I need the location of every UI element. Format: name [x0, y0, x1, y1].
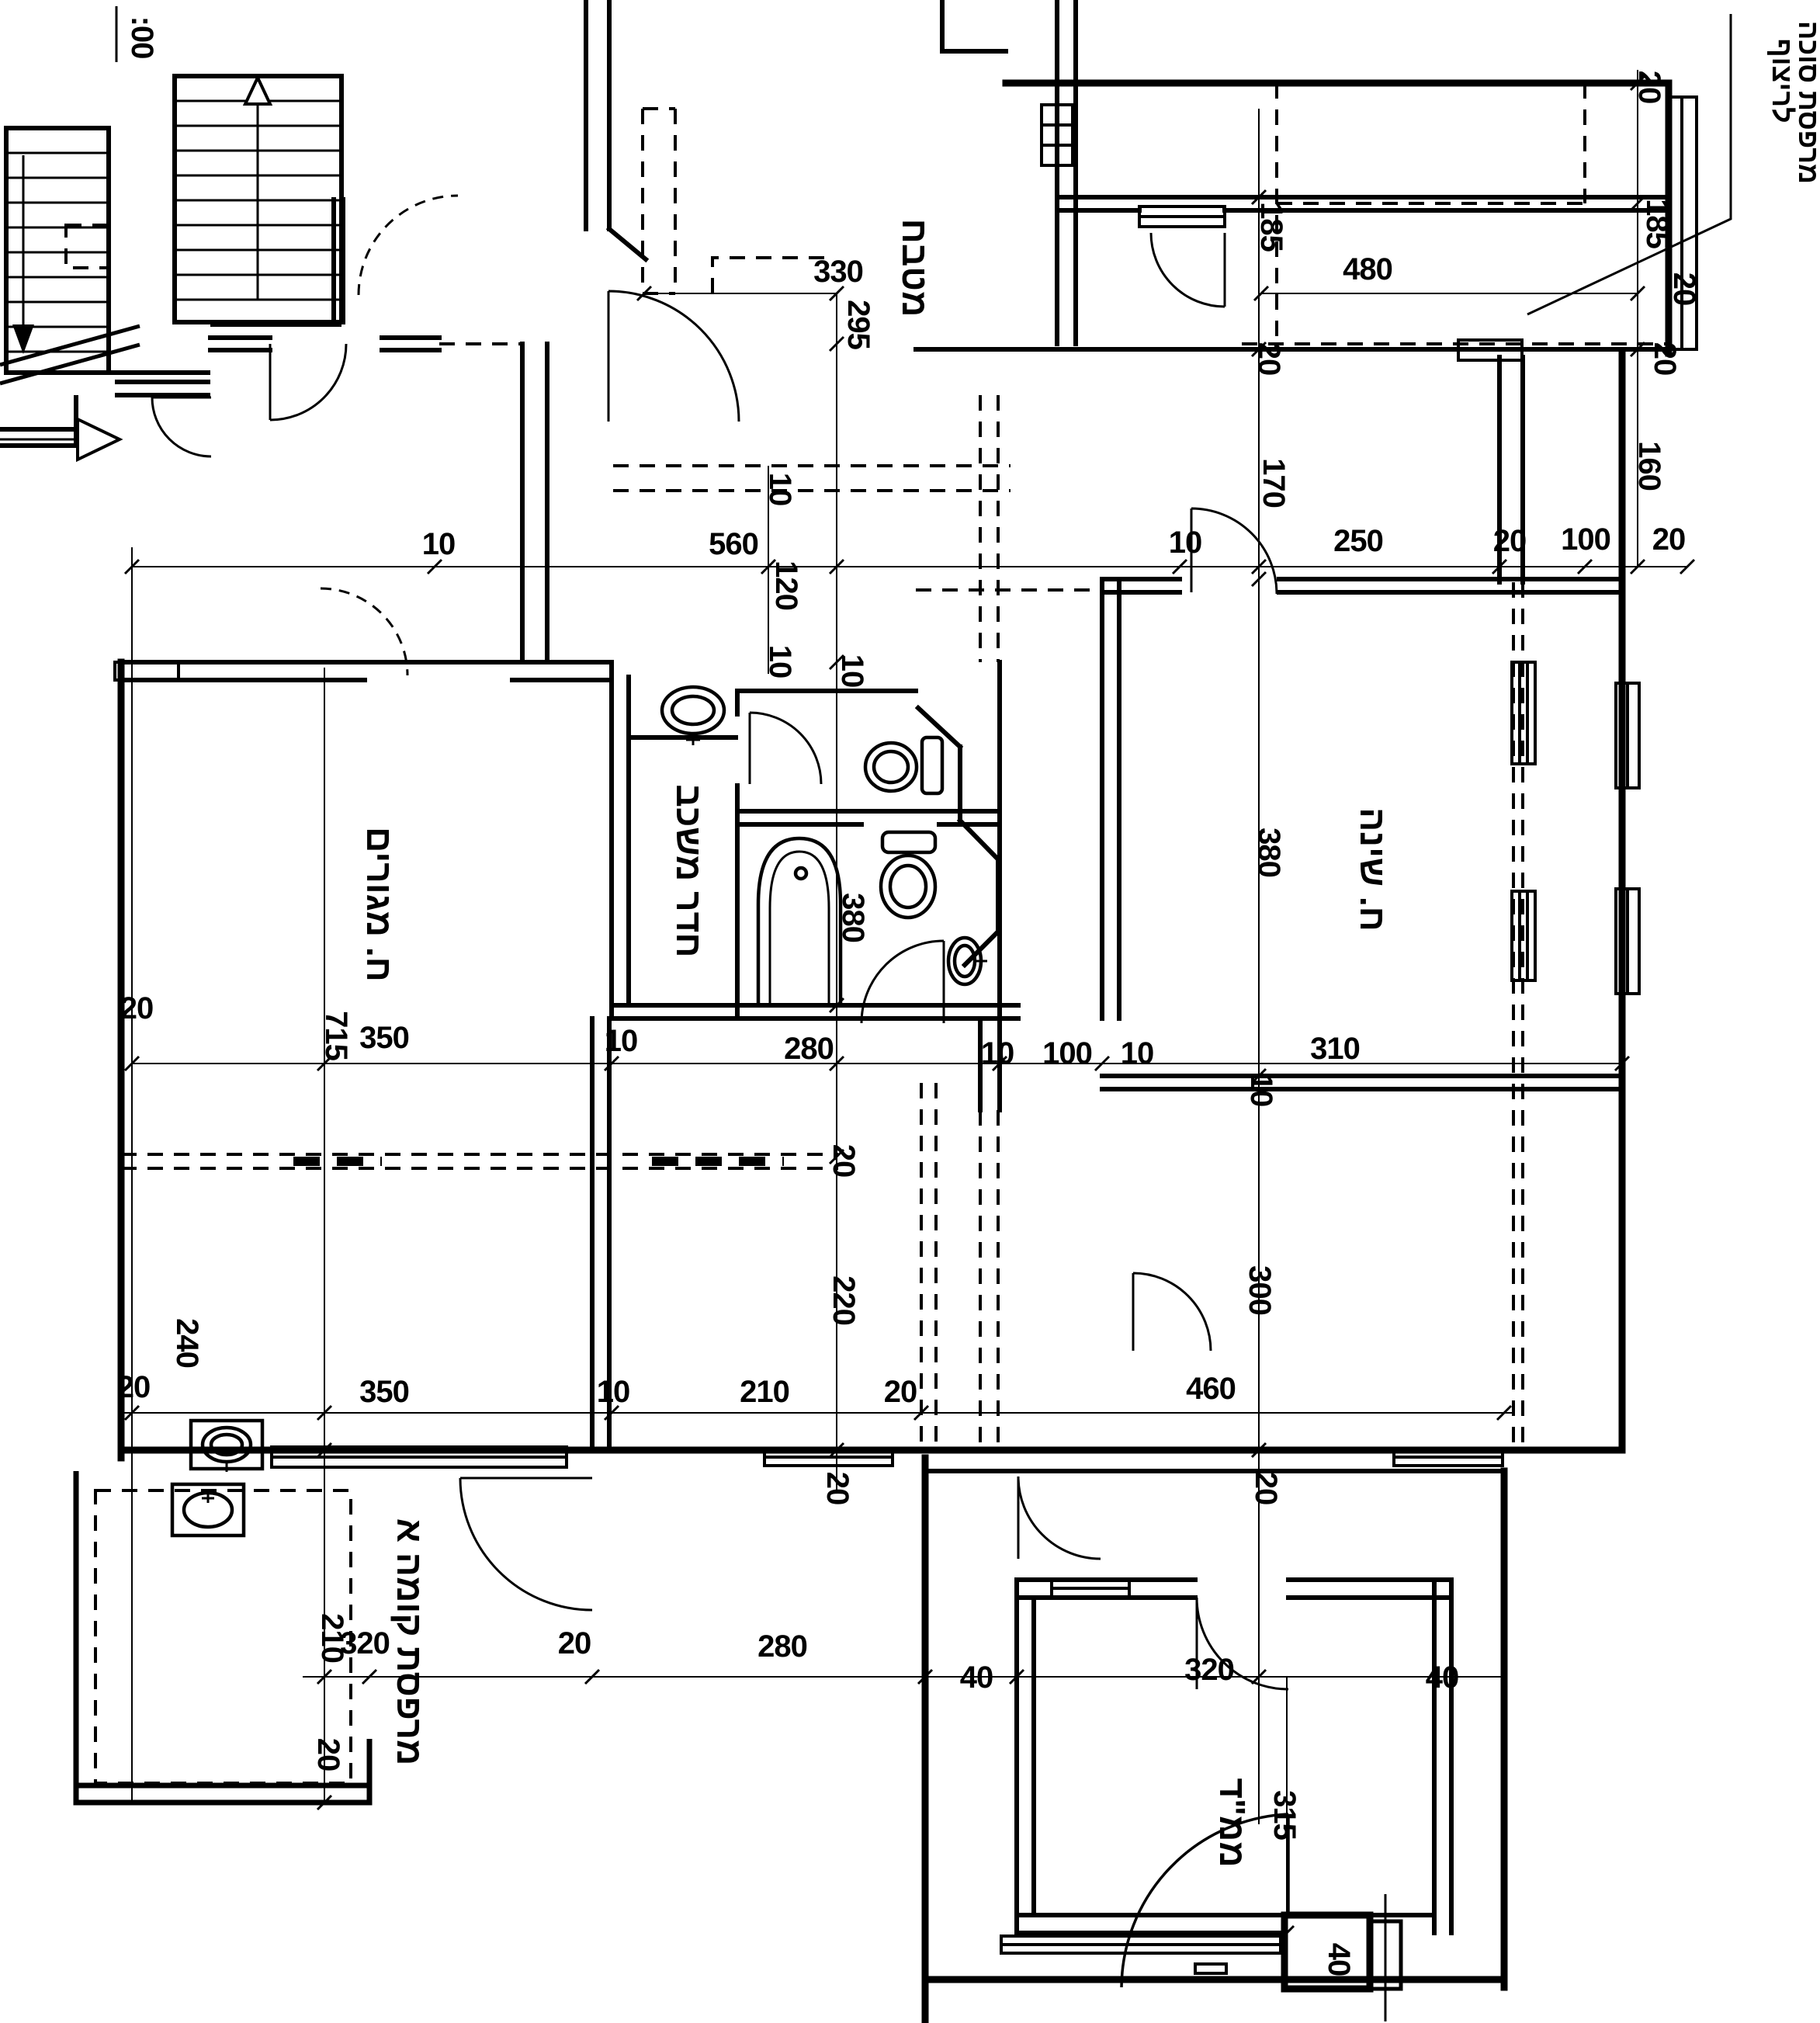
dimension-label: 220: [827, 1275, 861, 1325]
lower-right-room-door: [1133, 1273, 1211, 1351]
dimension-label: 20: [558, 1626, 591, 1660]
dimension-label: 10: [1121, 1036, 1154, 1070]
dimension-label: 380: [1252, 828, 1286, 877]
dimension-label: 320: [1184, 1653, 1234, 1687]
dimension-label: 100: [1042, 1036, 1092, 1070]
dimension-label: 120: [769, 560, 803, 610]
dimension-label: 100: [1561, 522, 1610, 557]
dimension-label: 20: [1648, 342, 1682, 376]
floor-plan-sheet: 3302951854802020185202016017010560101201…: [0, 0, 1820, 2023]
dimension-label: 20: [117, 1370, 151, 1404]
bath-lower-door: [861, 941, 944, 1023]
dimension-label: 20: [1652, 522, 1686, 557]
laundry-sink-icon: [191, 1421, 262, 1472]
dimension-label: 10: [597, 1375, 630, 1409]
mamad-corridor-door: [1018, 1476, 1101, 1559]
room-label-mamad: ממ"ד: [1212, 1778, 1253, 1867]
dimension-label: 350: [359, 1021, 409, 1055]
entry-door: [270, 344, 346, 420]
dimension-label: 185: [1254, 202, 1288, 252]
dimension-label: 20: [1493, 524, 1527, 558]
dimension-label: 460: [1186, 1372, 1236, 1406]
stair-hall-door: [152, 397, 211, 456]
fixtures: [172, 687, 987, 1535]
bedroom-door: [1191, 508, 1277, 594]
dimension-label: 20: [1249, 1472, 1283, 1505]
stair-down-arrow-icon: [12, 324, 34, 354]
sukkah-balcony-door: [1151, 233, 1225, 307]
kitchen-left-door-dashed: [359, 196, 458, 295]
pergola-dashed: [1242, 83, 1667, 344]
dimension-label: 10: [605, 1024, 638, 1058]
dimension-label: 40: [1426, 1660, 1459, 1695]
dimension-label: 20: [311, 1738, 345, 1771]
balcony-a-door: [460, 1478, 592, 1610]
room-label-balcony-a: מרפסת קומה א: [390, 1518, 430, 1766]
dimension-label: 160: [1632, 441, 1666, 491]
dimension-label: 560: [709, 527, 758, 561]
toilet-icon: [881, 832, 935, 918]
blast-door-arc: [1121, 1814, 1288, 1987]
dimension-label: 10: [763, 645, 797, 678]
dimension-label: 20: [1667, 272, 1701, 306]
dimension-label: 20: [120, 991, 154, 1025]
entry-direction-arrow-icon: [78, 419, 120, 460]
room-label-chamber: חדר משכב: [669, 784, 709, 957]
dimension-label: 350: [359, 1375, 409, 1409]
dimension-label: 20: [1252, 342, 1286, 376]
dimension-label: 20: [884, 1375, 917, 1409]
dimension-label: 715: [319, 1011, 353, 1060]
dimension-label: 20: [820, 1472, 855, 1505]
dimension-label: 10: [1244, 1074, 1278, 1107]
slider-window-1: [1139, 206, 1225, 227]
dimension-label: 20: [827, 1144, 861, 1178]
dimension-label: 40: [1322, 1943, 1356, 1976]
dimension-label: 330: [813, 255, 863, 289]
wc-door: [750, 713, 821, 784]
room-label-living: ח. מגורים: [359, 827, 400, 982]
dimension-label: 10: [981, 1036, 1014, 1070]
bathtub-icon: [758, 838, 841, 1004]
annotations: 3302951854802020185202016017010560101201…: [117, 16, 1820, 1976]
toilet-icon: [865, 737, 942, 793]
dimension-label: 315: [1267, 1790, 1302, 1840]
dimension-label: 40: [960, 1660, 993, 1695]
dimension-label: 280: [757, 1629, 807, 1664]
scale-text: :00: [125, 16, 159, 59]
dimension-label: 380: [836, 893, 870, 942]
room-label-kitchen: מטבח: [895, 219, 935, 318]
kitchen-walls: [586, 0, 1076, 344]
dimension-label: 10: [422, 527, 456, 561]
beam-line: [121, 1154, 838, 1168]
dimension-label: 300: [1243, 1265, 1277, 1315]
kitchen-counter-dashed: [613, 109, 1011, 491]
dimension-label: 185: [1640, 199, 1674, 248]
dimension-label: 10: [835, 654, 869, 688]
hall-closet-wall: [522, 344, 547, 662]
dimension-label: 10: [1169, 526, 1202, 560]
dimension-label: 280: [784, 1032, 834, 1066]
stairs: [0, 76, 343, 460]
living-top-wall: [121, 662, 612, 680]
shaft-dashed: [66, 225, 109, 268]
bedroom-top-wall: [1102, 579, 1622, 592]
mamad-bottom-window: [1001, 1936, 1281, 1973]
kitchen-door: [608, 291, 739, 422]
dimension-label: 250: [1333, 524, 1383, 558]
dimension-label: 310: [1310, 1032, 1360, 1066]
mamad-top-window: [1052, 1580, 1129, 1598]
stair-arrow-line: [23, 104, 258, 324]
room-label-bedroom: ח. שינה: [1353, 807, 1393, 932]
stair-up-arrow-icon: [245, 78, 270, 104]
entry-wall: [210, 338, 439, 350]
dimension-label: 480: [1343, 252, 1392, 286]
dimension-label: 295: [841, 300, 875, 349]
floor-plan-drawing: 3302951854802020185202016017010560101201…: [0, 0, 1820, 2023]
doors: [152, 233, 1288, 1987]
bedroom-bottom-wall: [1102, 1076, 1622, 1089]
dimension-label: 320: [340, 1626, 390, 1660]
dimension-label: 170: [1257, 458, 1291, 508]
central-wall: [1102, 579, 1119, 1018]
sukkah-note-leader: [1527, 14, 1731, 314]
dimension-label: 10: [763, 473, 797, 506]
dimension-label: 240: [170, 1318, 204, 1368]
note-for-tiling: לריצוף: [1766, 38, 1798, 123]
dimension-label: 20: [1632, 71, 1666, 104]
lower-room-dashed: [916, 395, 1102, 1450]
dimension-label: 210: [740, 1375, 789, 1409]
